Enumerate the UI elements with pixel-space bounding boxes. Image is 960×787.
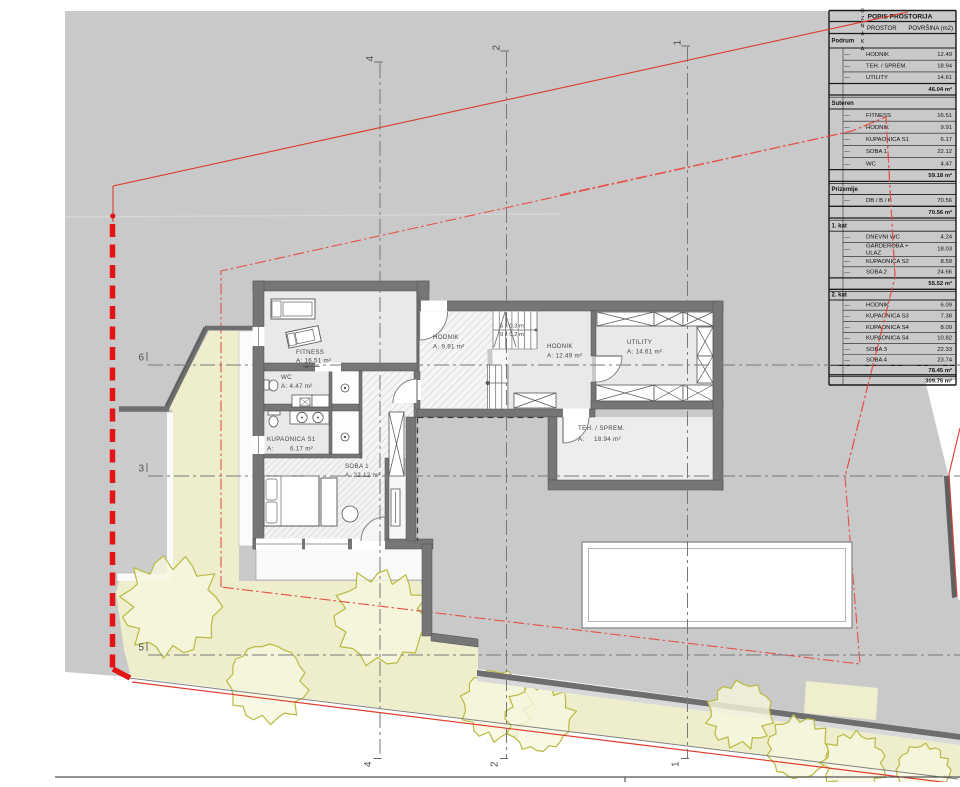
svg-text:7.38: 7.38 [941,314,953,320]
svg-text:SOBA 1: SOBA 1 [345,463,369,470]
svg-text:78.45 m²: 78.45 m² [928,367,952,374]
svg-text:A: 4.47 m²: A: 4.47 m² [281,383,313,390]
svg-text:ULAZ: ULAZ [866,251,881,257]
svg-text:12.49: 12.49 [937,52,952,58]
svg-text:DB / B / K: DB / B / K [866,198,892,204]
svg-text:SOBA 2: SOBA 2 [866,269,887,275]
svg-text:TEH. / SPREM.: TEH. / SPREM. [866,64,907,70]
svg-text:A: A [861,47,865,53]
svg-text:9.91: 9.91 [941,125,952,131]
svg-text:4: 4 [363,761,374,767]
svg-text:70.56 m²: 70.56 m² [928,209,952,216]
svg-text:5 x 0.3 m: 5 x 0.3 m [500,324,524,330]
svg-text:HODNIK: HODNIK [433,334,459,341]
svg-text:1. kat: 1. kat [832,224,847,230]
svg-text:—: — [844,113,850,119]
svg-text:—: — [844,247,850,253]
svg-text:22.12: 22.12 [937,149,952,155]
svg-text:10.82: 10.82 [937,336,952,342]
svg-text:Prizemlje: Prizemlje [832,187,859,193]
svg-text:5: 5 [138,643,144,654]
svg-text:—: — [844,325,850,331]
svg-text:—: — [844,75,850,81]
svg-text:18.03: 18.03 [937,247,952,253]
svg-text:59.18 m²: 59.18 m² [928,172,952,179]
svg-text:18.94: 18.94 [937,64,952,70]
svg-text:HODNIK: HODNIK [866,303,889,309]
svg-text:23.74: 23.74 [937,358,952,364]
svg-text:KUPAONICA S2: KUPAONICA S2 [866,259,909,265]
svg-text:55.52 m²: 55.52 m² [928,280,952,287]
svg-text:70.56: 70.56 [937,198,952,204]
svg-text:A: 16.51 m²: A: 16.51 m² [296,358,331,365]
svg-text:1: 1 [673,40,684,46]
svg-text:O: O [860,9,864,15]
svg-text:HODNIK: HODNIK [866,125,889,131]
svg-text:A: 14.61 m²: A: 14.61 m² [627,349,662,356]
svg-text:—: — [844,52,850,58]
svg-text:24.66: 24.66 [937,269,952,275]
svg-text:—: — [844,125,850,131]
svg-text:2: 2 [490,761,501,767]
svg-text:Podrum: Podrum [832,39,855,45]
svg-text:A:: A: [267,446,273,453]
svg-text:WC: WC [281,374,292,381]
svg-text:FITNESS: FITNESS [866,113,891,119]
svg-text:KUPAONICA S4: KUPAONICA S4 [866,325,909,331]
svg-text:6.17: 6.17 [941,137,952,143]
svg-text:8.09: 8.09 [941,325,952,331]
svg-text:2: 2 [492,45,503,51]
svg-text:6.17 m²: 6.17 m² [290,446,313,453]
svg-text:DNEVNI WC: DNEVNI WC [866,235,900,241]
svg-text:UTILITY: UTILITY [866,75,888,81]
svg-text:14.61: 14.61 [937,75,952,81]
svg-text:KUPAONICA S4: KUPAONICA S4 [866,336,909,342]
svg-text:GARDEROBA +: GARDEROBA + [866,244,909,250]
svg-text:FITNESS: FITNESS [296,349,324,356]
svg-text:—: — [844,235,850,241]
svg-text:—: — [844,149,850,155]
svg-text:POPIS PROSTORIJA: POPIS PROSTORIJA [868,14,933,21]
svg-text:N: N [861,24,865,30]
svg-text:TEH. / SPREM.: TEH. / SPREM. [578,425,625,432]
svg-text:SOBA 1: SOBA 1 [866,149,887,155]
svg-text:A:: A: [578,436,584,443]
svg-text:16.51: 16.51 [937,113,952,119]
svg-text:309.75 m²: 309.75 m² [925,378,952,385]
svg-text:A: A [861,31,865,37]
svg-text:—: — [844,347,850,353]
svg-text:POVRŠINA (m2): POVRŠINA (m2) [908,25,953,32]
svg-text:22.33: 22.33 [937,347,952,353]
svg-text:A: 9.91 m²: A: 9.91 m² [433,344,465,351]
svg-text:—: — [844,64,850,70]
svg-text:46.04 m²: 46.04 m² [928,86,952,93]
svg-text:Suteren: Suteren [832,101,855,107]
svg-text:K: K [861,39,865,45]
svg-text:—: — [844,314,850,320]
svg-text:6: 6 [138,353,144,364]
svg-text:9 x 0.2 m: 9 x 0.2 m [500,332,524,338]
svg-text:KUPAONICA S1: KUPAONICA S1 [267,436,316,443]
svg-text:1: 1 [671,761,682,767]
svg-text:HODNIK: HODNIK [547,343,573,350]
svg-text:WC: WC [866,161,877,167]
svg-text:KUPAONICA S3: KUPAONICA S3 [866,314,909,320]
svg-text:4.24: 4.24 [941,235,953,241]
svg-text:—: — [844,137,850,143]
svg-text:HODNIK: HODNIK [866,52,889,58]
svg-text:—: — [844,259,850,265]
svg-text:—: — [844,336,850,342]
svg-text:—: — [844,303,850,309]
svg-text:18.94 m²: 18.94 m² [594,436,621,443]
svg-text:4: 4 [365,56,376,62]
svg-text:PROSTOR: PROSTOR [867,26,897,32]
svg-text:UTILITY: UTILITY [627,339,652,346]
svg-text:6.09: 6.09 [941,303,952,309]
svg-text:—: — [844,358,850,364]
svg-text:—: — [844,269,850,275]
svg-text:2. kat: 2. kat [832,293,847,299]
svg-text:8.59: 8.59 [941,259,952,265]
svg-text:4.47: 4.47 [941,161,952,167]
svg-text:3: 3 [138,464,144,475]
svg-text:—: — [844,198,850,204]
svg-text:—: — [844,161,850,167]
svg-text:A: 12.49 m²: A: 12.49 m² [547,353,582,360]
svg-text:SOBA 4: SOBA 4 [866,358,888,364]
